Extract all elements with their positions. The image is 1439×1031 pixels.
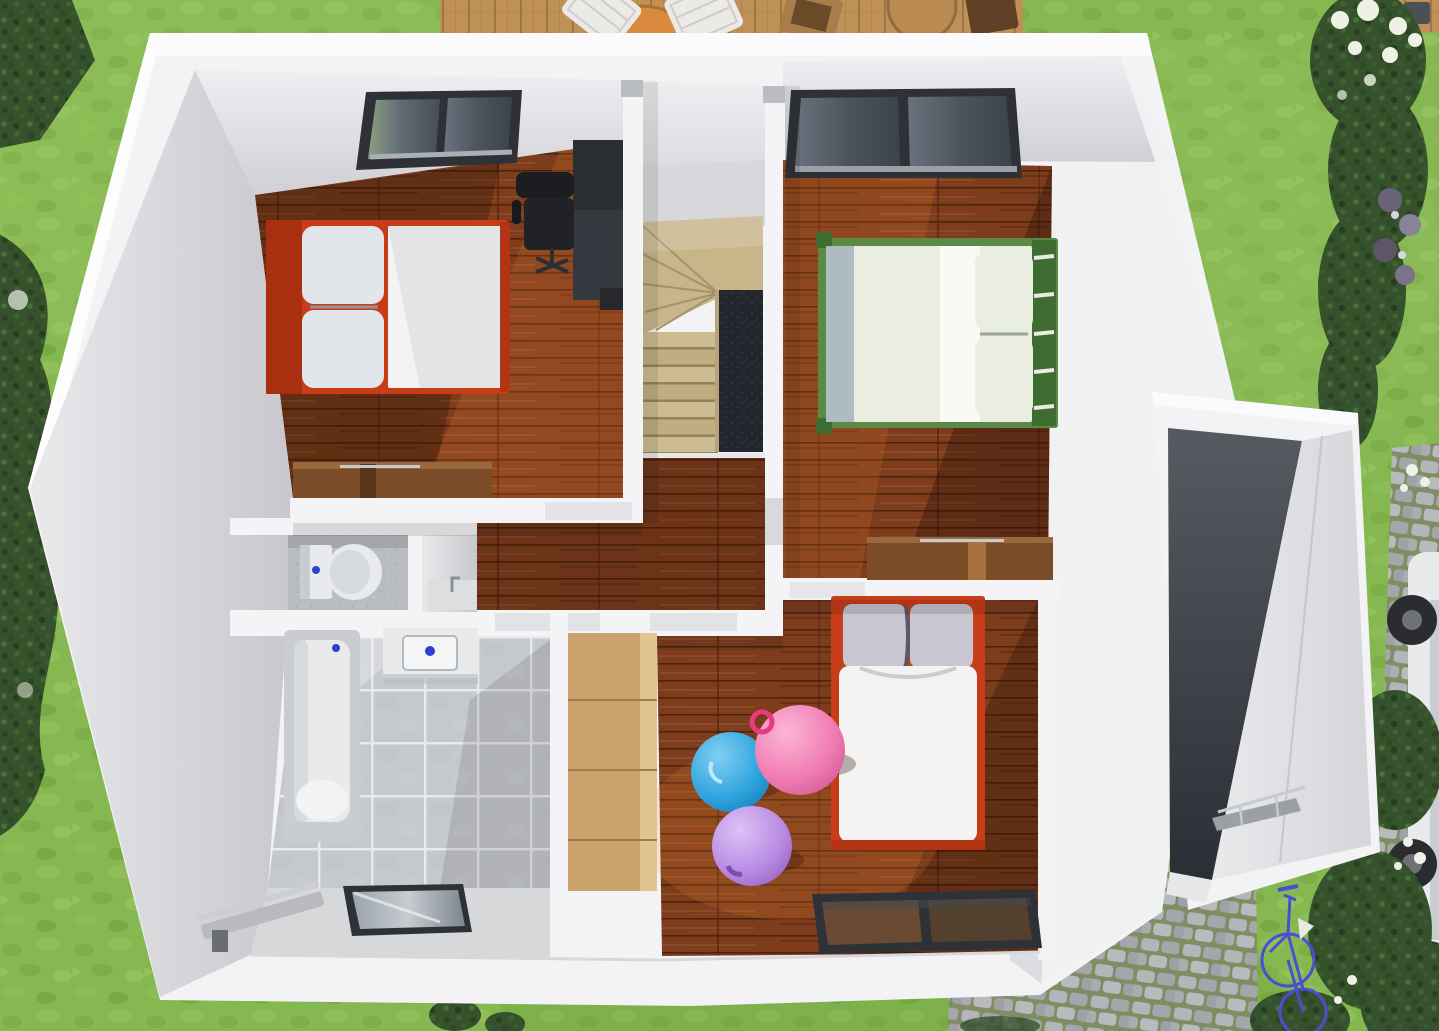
roof-window-sill — [795, 166, 1017, 172]
dresser-handle — [920, 539, 1004, 542]
washbasin — [383, 628, 478, 684]
chair-armrest — [512, 200, 521, 224]
pillow — [975, 252, 1033, 330]
room-wc — [288, 535, 477, 612]
footboard — [831, 840, 985, 850]
desk-top-shaded — [573, 140, 625, 210]
roof-window-glass — [444, 97, 512, 154]
duvet — [839, 666, 977, 842]
roof-window-glass — [795, 97, 900, 168]
footboard — [500, 222, 510, 392]
wall-cap-metal — [621, 80, 643, 97]
garage — [1152, 392, 1380, 910]
dresser-grain — [968, 539, 986, 580]
sheet-fold — [940, 246, 980, 422]
stairwell-void — [718, 290, 763, 452]
bed-foot — [816, 232, 832, 248]
door-sill-kids — [650, 613, 737, 631]
door-sill-bedroom-right — [790, 582, 865, 598]
dresser-walnut — [867, 537, 1053, 580]
roof-window-glass — [908, 96, 1012, 168]
roof-window-glass — [352, 890, 465, 929]
wall-kids-east — [1038, 600, 1060, 960]
wall-radiator — [428, 578, 477, 610]
desk-leg — [600, 288, 626, 310]
headboard — [266, 220, 302, 394]
wall-cap-metal — [763, 86, 785, 103]
basin-shadow — [383, 674, 478, 684]
toilet — [300, 544, 382, 600]
roof-window-kids — [812, 890, 1042, 954]
dresser-handle — [340, 465, 420, 468]
roof-window-glass — [368, 99, 440, 159]
roof-window — [356, 90, 522, 170]
roof-window-bathroom — [343, 884, 472, 936]
folded-blanket — [826, 246, 854, 422]
toilet-seat — [330, 550, 370, 594]
floor-plan-render — [0, 0, 1439, 1031]
bathtub-tap — [332, 644, 340, 652]
cistern-shade — [300, 545, 310, 599]
void-edge — [715, 290, 719, 452]
pillow — [975, 338, 1033, 416]
bathtub — [284, 630, 360, 842]
curb-slot — [212, 930, 228, 952]
winder-light — [643, 216, 763, 252]
door-sill — [545, 502, 632, 520]
pillow — [302, 226, 384, 304]
blossom — [8, 290, 28, 310]
house-top-band — [150, 33, 1152, 56]
desk — [573, 140, 626, 310]
pillow-crease — [906, 606, 908, 666]
room-bedroom-right — [783, 88, 1058, 580]
dresser-grain — [360, 464, 376, 502]
pillow — [302, 310, 384, 388]
bed-single-red — [831, 596, 985, 850]
house — [28, 33, 1235, 1006]
chair-seat — [524, 198, 574, 250]
car-wheel-hub — [1402, 610, 1422, 630]
wall-stair-left — [623, 80, 643, 523]
wardrobe — [568, 633, 657, 891]
gym-ball-pink — [755, 705, 845, 795]
basin-drain — [425, 646, 435, 656]
wall-wc-east — [408, 535, 422, 612]
dresser-walnut — [293, 462, 492, 502]
bed-double-green — [816, 232, 1058, 434]
bed-double-red — [266, 220, 510, 394]
scene-canvas — [0, 0, 1439, 1031]
gym-ball-purple — [712, 806, 792, 886]
wardrobe-edge — [640, 633, 657, 891]
flight-base-edge — [643, 453, 765, 458]
roof-window — [785, 88, 1022, 178]
flush-button — [312, 566, 320, 574]
blossom — [17, 682, 33, 698]
wall-bathroom-east — [550, 610, 568, 895]
door-sill-bathroom — [495, 613, 600, 631]
door-opening-bedroom-right — [765, 498, 785, 545]
bathtub-curve — [296, 780, 348, 820]
